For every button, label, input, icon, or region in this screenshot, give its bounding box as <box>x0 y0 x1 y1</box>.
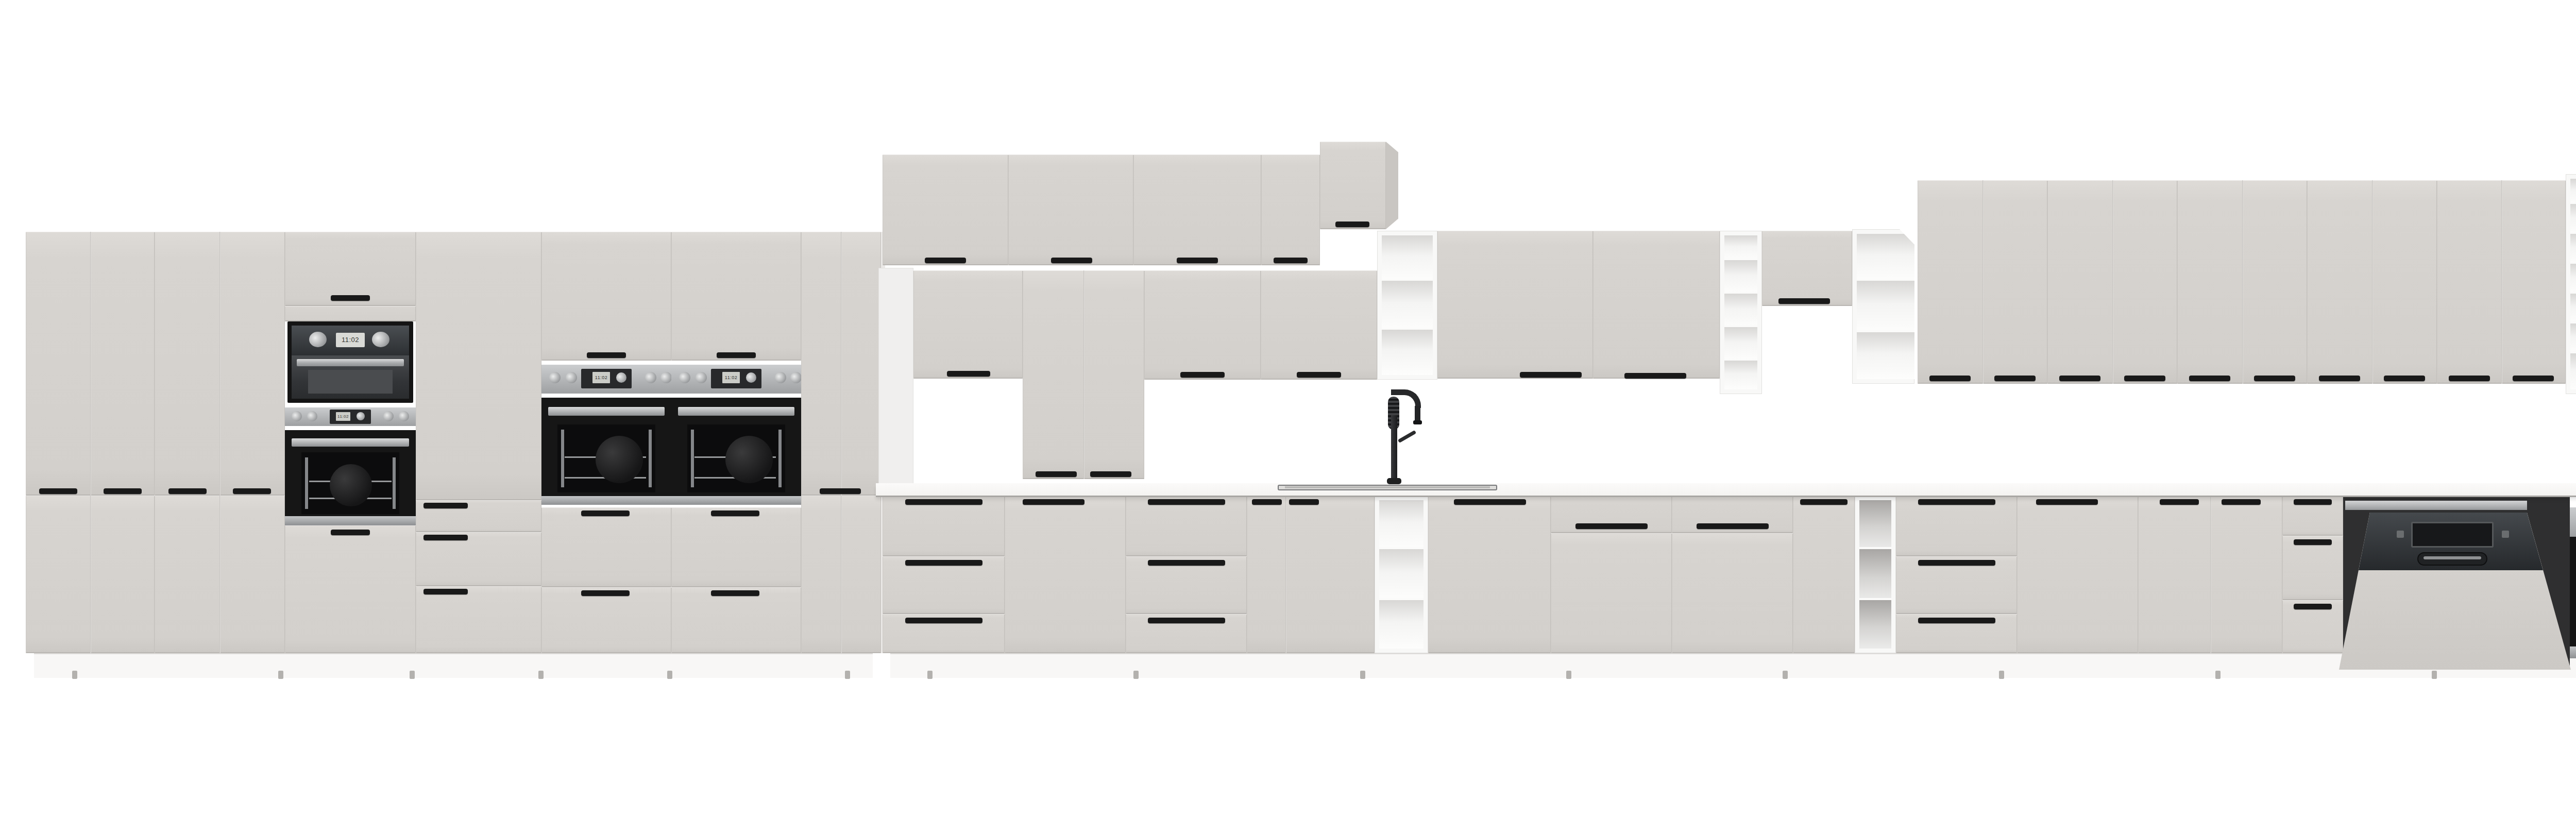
oven-c-knob[interactable] <box>775 372 786 383</box>
sink-base-doors[interactable] <box>1247 496 1375 653</box>
shelf-compartment <box>1724 294 1757 327</box>
cabinet-foot <box>1360 671 1365 679</box>
faucet-spout-tip <box>1413 420 1422 424</box>
tall-wall-cabinet[interactable] <box>1918 180 2047 384</box>
handle[interactable] <box>1778 298 1830 304</box>
raised-wall-cabinet[interactable] <box>1320 142 1386 229</box>
handle[interactable] <box>711 510 759 516</box>
oven-c-knob[interactable] <box>696 372 707 383</box>
oven-b-rack-rail <box>649 430 652 487</box>
oven-column-top-door[interactable] <box>541 232 671 361</box>
oven-b-rack-rail <box>561 430 564 487</box>
door-seam <box>219 232 221 496</box>
handle[interactable] <box>2036 499 2098 505</box>
oven-b-knob[interactable] <box>566 372 577 383</box>
door-seam <box>2501 180 2502 384</box>
shelf-compartment <box>2570 294 2576 323</box>
handle[interactable] <box>2124 376 2165 381</box>
shelf-compartment <box>2570 179 2576 204</box>
handle[interactable] <box>1148 618 1225 623</box>
kitchen-elevation-render: 11:0211:0211:0211:0211:02 <box>0 0 2576 818</box>
shelf-compartment <box>1382 281 1433 330</box>
tall-cabinet-door[interactable] <box>155 496 285 653</box>
base-open-shelf <box>1375 496 1428 653</box>
wall-cabinet-door[interactable] <box>1593 231 1720 379</box>
oven-c-bottom-strip <box>671 496 801 505</box>
base-cabinet-door[interactable] <box>1005 496 1126 653</box>
builtin-oven-bottom-strip <box>2570 646 2576 658</box>
base-open-shelf <box>1855 496 1896 653</box>
handle[interactable] <box>1918 560 1995 566</box>
handle[interactable] <box>331 295 370 301</box>
dishwasher-button[interactable] <box>2502 531 2509 538</box>
handle[interactable] <box>39 488 77 494</box>
handle[interactable] <box>905 560 982 566</box>
sink-inner-line <box>1285 486 1490 488</box>
shelf-compartment <box>1724 260 1757 294</box>
handle[interactable] <box>905 499 982 505</box>
wall-cabinet-door[interactable] <box>883 155 1008 265</box>
handle[interactable] <box>423 503 468 508</box>
handle[interactable] <box>1180 372 1225 378</box>
oven-a-clock: 11:02 <box>336 412 350 421</box>
shelf-compartment <box>1859 600 1891 649</box>
door-seam <box>2242 180 2243 384</box>
handle[interactable] <box>1090 471 1131 477</box>
base-cabinet-door[interactable] <box>1551 533 1672 653</box>
compact-oven-clock: 11:02 <box>336 333 365 347</box>
handle[interactable] <box>1289 499 1319 505</box>
handle[interactable] <box>1274 258 1308 263</box>
faucet-spout[interactable] <box>1415 406 1420 421</box>
tall-cabinet-door[interactable] <box>801 232 881 496</box>
handle[interactable] <box>423 589 468 594</box>
tall-run-plinth <box>34 653 873 678</box>
handle[interactable] <box>2254 376 2295 381</box>
door-seam <box>2112 180 2113 384</box>
shelf-compartment <box>1724 361 1757 389</box>
handle[interactable] <box>1918 499 1995 505</box>
oven-b-round-pan <box>596 436 643 483</box>
shelf-compartment <box>1857 281 1924 332</box>
shelf-compartment <box>1857 332 1924 379</box>
cabinet-foot <box>927 671 933 679</box>
handle[interactable] <box>1036 471 1077 477</box>
door-seam <box>219 496 221 653</box>
drawer-front[interactable] <box>416 586 541 653</box>
shelf-compartment <box>2570 264 2576 294</box>
cabinet-foot <box>1999 671 2004 679</box>
handle[interactable] <box>2384 376 2425 381</box>
faucet-base <box>1387 478 1401 484</box>
shelf-compartment <box>1859 549 1891 600</box>
oven-c-round-pan <box>725 436 773 483</box>
oven-b-knob[interactable] <box>660 372 672 383</box>
compact-oven-knob[interactable] <box>372 332 389 347</box>
cabinet-foot <box>2215 671 2221 679</box>
handle[interactable] <box>2059 376 2100 381</box>
oven-a-rack-rail <box>393 457 396 509</box>
base-cabinet-doors[interactable] <box>2138 496 2282 653</box>
handle[interactable] <box>331 530 370 535</box>
builtin-oven-control-strip <box>2570 507 2576 537</box>
base-cabinet-door[interactable] <box>2017 496 2138 653</box>
handle[interactable] <box>2189 376 2230 381</box>
bridge-wall-cabinet[interactable] <box>913 270 1023 379</box>
shelf-compartment <box>1382 235 1433 281</box>
handle[interactable] <box>925 258 966 263</box>
faucet-column[interactable] <box>1391 415 1397 480</box>
cabinet-foot <box>1783 671 1788 679</box>
oven-a-knob[interactable] <box>292 411 302 421</box>
cabinet-foot <box>538 671 544 679</box>
handle[interactable] <box>1454 499 1526 505</box>
handle[interactable] <box>581 510 630 516</box>
cabinet-foot <box>1566 671 1571 679</box>
tall-cabinet-door[interactable] <box>26 232 155 496</box>
oven-a-handle-bar[interactable] <box>292 438 409 447</box>
oven-c-knob[interactable] <box>679 372 690 383</box>
handle[interactable] <box>2513 376 2554 381</box>
handle[interactable] <box>1520 372 1582 378</box>
dishwasher-button[interactable] <box>2397 531 2404 538</box>
oven-column-filler <box>285 306 416 321</box>
corner-open-shelf <box>1852 229 1914 384</box>
raised-wall-cabinet-side <box>1386 142 1398 229</box>
shelf-compartment <box>1857 234 1924 281</box>
handle[interactable] <box>2449 376 2490 381</box>
handle[interactable] <box>1297 372 1341 378</box>
shelf-compartment <box>1379 500 1423 549</box>
handle[interactable] <box>1800 499 1848 505</box>
handle[interactable] <box>820 488 861 494</box>
oven-c-knob[interactable] <box>790 372 802 383</box>
oven-c-rack-rail <box>778 430 782 487</box>
oven-a-module-knob[interactable] <box>357 412 365 420</box>
drawer-front[interactable] <box>671 507 801 587</box>
cabinet-foot <box>278 671 283 679</box>
oven-a-knob[interactable] <box>399 411 409 421</box>
upper-side-gable <box>878 268 913 484</box>
faucet-lever[interactable] <box>1398 430 1416 443</box>
handle[interactable] <box>2222 499 2261 505</box>
hanging-open-shelf <box>1377 231 1437 380</box>
compact-oven-glass-reflection <box>308 370 393 394</box>
handle[interactable] <box>581 590 630 596</box>
oven-c-module-knob[interactable] <box>746 372 756 383</box>
handle[interactable] <box>233 488 271 494</box>
door-seam <box>841 496 842 653</box>
countertop <box>876 483 2576 496</box>
wall-cabinet-door[interactable] <box>1008 155 1133 265</box>
oven-a-knob[interactable] <box>383 411 394 421</box>
cabinet-foot <box>410 671 415 679</box>
tall-cabinet-door[interactable] <box>416 232 541 500</box>
builtin-oven-bezel <box>2570 537 2576 658</box>
oven-a-knob[interactable] <box>307 411 317 421</box>
dishwasher-handle-steel <box>2424 556 2481 559</box>
handle[interactable] <box>2319 376 2360 381</box>
handle[interactable] <box>1051 258 1092 263</box>
handle[interactable] <box>1918 618 1995 623</box>
tall-wall-cabinet[interactable] <box>2307 180 2437 384</box>
drawer-front[interactable] <box>2282 536 2343 600</box>
oven-column-bottom-door[interactable] <box>285 525 416 653</box>
oven-c-rack-rail <box>691 430 694 487</box>
handle[interactable] <box>1023 499 1084 505</box>
oven-b-knob[interactable] <box>549 372 561 383</box>
oven-c-clock: 11:02 <box>722 372 740 383</box>
handle[interactable] <box>1148 560 1225 566</box>
cabinet-foot <box>845 671 850 679</box>
shelf-compartment <box>2570 234 2576 264</box>
cabinet-foot <box>72 671 77 679</box>
shelf-compartment <box>1859 500 1891 549</box>
drawer-front[interactable] <box>541 587 671 653</box>
handle[interactable] <box>711 590 759 596</box>
handle[interactable] <box>717 352 756 358</box>
door-seam <box>1083 270 1084 479</box>
oven-c-handle-bar[interactable] <box>678 407 794 416</box>
handle[interactable] <box>587 352 626 358</box>
hob-bridge-cabinet[interactable] <box>1762 231 1852 306</box>
door-seam <box>90 232 91 496</box>
oven-b-clock: 11:02 <box>592 372 610 383</box>
dishwasher-steel-edge <box>2345 501 2527 510</box>
shelf-compartment <box>1379 549 1423 600</box>
cabinet-foot <box>1133 671 1139 679</box>
tall-wall-cabinet[interactable] <box>2177 180 2307 384</box>
tall-cabinet-door[interactable] <box>155 232 285 496</box>
oven-b-handle-bar[interactable] <box>548 407 665 416</box>
door-seam <box>841 232 842 496</box>
base-cabinet-door[interactable] <box>1672 533 1793 653</box>
shelf-tower-narrow <box>2566 174 2576 394</box>
handle[interactable] <box>2294 604 2332 609</box>
oven-a-round-pan <box>330 464 372 506</box>
handle[interactable] <box>1624 373 1686 379</box>
oven-a-bottom-strip <box>285 516 416 525</box>
tall-cabinet-door[interactable] <box>26 496 155 653</box>
handle[interactable] <box>1252 499 1282 505</box>
base-cabinet-door[interactable] <box>1428 496 1551 653</box>
base-run-plinth <box>890 653 2576 678</box>
handle[interactable] <box>2294 539 2332 545</box>
handle[interactable] <box>1335 221 1369 227</box>
handle[interactable] <box>1575 523 1648 529</box>
compact-oven-knob[interactable] <box>309 332 327 347</box>
handle[interactable] <box>1994 376 2036 381</box>
handle[interactable] <box>1929 376 1971 381</box>
shelf-compartment <box>2570 204 2576 234</box>
drawer-front[interactable] <box>541 507 671 587</box>
shelf-compartment <box>1724 235 1757 260</box>
handle[interactable] <box>1177 258 1218 263</box>
shelf-compartment <box>2570 323 2576 353</box>
door-seam <box>90 496 91 653</box>
wall-cabinet-door[interactable] <box>1144 270 1261 380</box>
wall-cabinet-door[interactable] <box>1261 270 1377 380</box>
handle[interactable] <box>905 618 982 623</box>
base-cabinet-door[interactable] <box>1793 496 1855 653</box>
compact-oven-handle-bar[interactable] <box>297 359 404 366</box>
wall-cabinet-door[interactable] <box>1133 155 1261 265</box>
tall-cabinet-door[interactable] <box>801 496 881 653</box>
shelf-compartment <box>1382 330 1433 375</box>
oven-b-module-knob[interactable] <box>616 372 626 383</box>
door-seam <box>1285 496 1286 653</box>
oven-b-bottom-strip <box>541 496 671 505</box>
mid-height-wall-unit[interactable] <box>1023 270 1144 479</box>
door-seam <box>1982 180 1984 384</box>
shelf-compartment <box>1724 327 1757 361</box>
door-seam <box>2372 180 2373 384</box>
open-shelf-column <box>1720 231 1762 394</box>
oven-a-rack-rail <box>305 457 308 509</box>
shelf-compartment <box>1379 600 1423 649</box>
cabinet-foot <box>667 671 672 679</box>
dishwasher-display <box>2411 522 2494 548</box>
oven-column-top-door[interactable] <box>671 232 801 361</box>
handle[interactable] <box>2160 499 2199 505</box>
handle[interactable] <box>168 488 207 494</box>
handle[interactable] <box>423 535 468 540</box>
handle[interactable] <box>104 488 142 494</box>
handle[interactable] <box>1148 499 1225 505</box>
cabinet-foot <box>2432 671 2437 679</box>
handle[interactable] <box>2294 499 2332 505</box>
tall-wall-cabinet[interactable] <box>2437 180 2566 384</box>
shelf-compartment <box>2570 353 2576 389</box>
handle[interactable] <box>1697 523 1769 529</box>
tall-wall-cabinet[interactable] <box>2047 180 2177 384</box>
handle[interactable] <box>947 371 990 377</box>
oven-b-knob[interactable] <box>645 372 656 383</box>
wall-cabinet-door[interactable] <box>1261 155 1320 265</box>
door-seam <box>2210 496 2211 653</box>
drawer-front[interactable] <box>671 587 801 653</box>
wall-cabinet-door[interactable] <box>1437 231 1593 379</box>
